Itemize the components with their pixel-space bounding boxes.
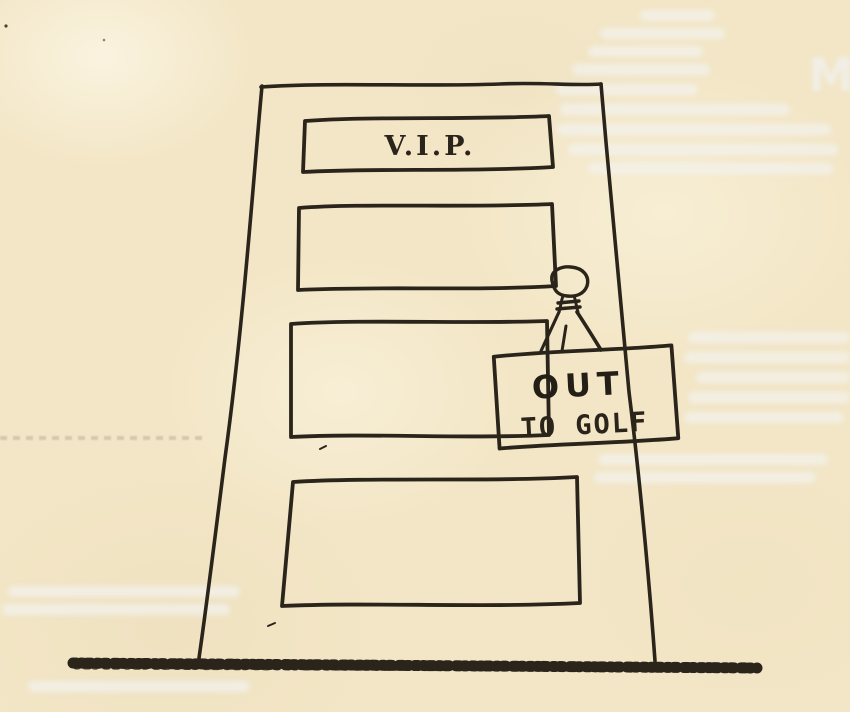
vip-sign-label: V.I.P. xyxy=(384,131,476,162)
knob-ring xyxy=(558,301,579,303)
sign-text-to-golf: TO GOLF xyxy=(520,407,649,445)
sign-cord-middle xyxy=(562,326,566,351)
building-left-edge xyxy=(199,86,262,658)
building-top-edge xyxy=(261,83,601,87)
paper-speck xyxy=(4,24,7,27)
knob-ring xyxy=(557,307,580,309)
sign-cord-left xyxy=(541,312,559,351)
paper-speck xyxy=(320,446,326,449)
blank-board-2 xyxy=(298,204,556,290)
blank-board-4 xyxy=(282,477,580,606)
cartoon-illustration: V.I.P. OUT TO GOLF xyxy=(0,0,850,712)
knob-neck-right xyxy=(574,296,578,312)
sign-cord-right xyxy=(577,312,601,350)
paper-speck xyxy=(268,623,275,626)
scanned-cartoon-page: M V.I.P. xyxy=(0,0,850,712)
out-to-golf-sign: OUT TO GOLF xyxy=(494,345,679,448)
paper-speck xyxy=(103,39,106,42)
blank-board-3 xyxy=(291,321,549,437)
sign-text-out: OUT xyxy=(531,364,626,407)
